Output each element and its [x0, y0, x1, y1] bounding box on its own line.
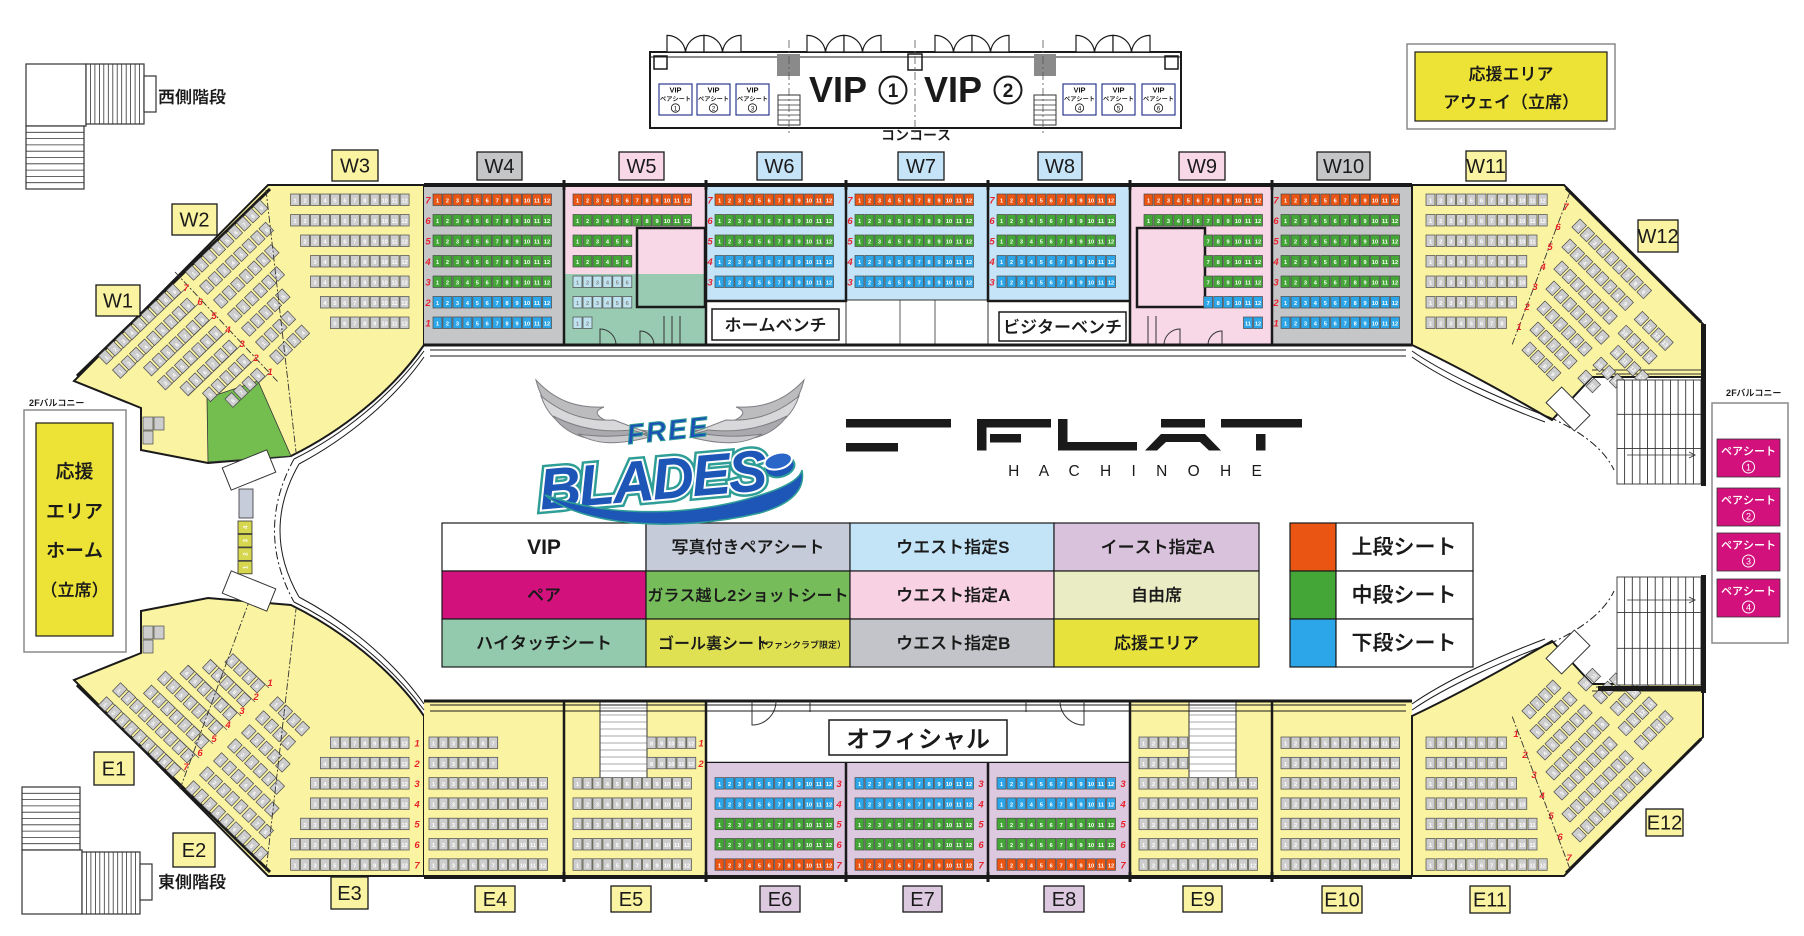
svg-text:12: 12	[688, 762, 694, 768]
svg-text:10: 10	[1230, 782, 1236, 788]
svg-text:12: 12	[1250, 863, 1256, 869]
svg-text:2: 2	[697, 759, 704, 770]
svg-text:1: 1	[718, 782, 721, 788]
svg-text:5: 5	[333, 863, 336, 869]
svg-text:3: 3	[878, 281, 881, 287]
svg-text:12: 12	[401, 762, 407, 768]
svg-text:7: 7	[1060, 260, 1063, 266]
svg-text:2: 2	[446, 301, 449, 307]
svg-text:9: 9	[512, 823, 515, 829]
svg-text:8: 8	[363, 219, 366, 225]
svg-text:11: 11	[534, 281, 540, 287]
svg-text:7: 7	[1490, 219, 1493, 225]
svg-text:1: 1	[1147, 219, 1150, 225]
svg-text:12: 12	[826, 782, 832, 788]
svg-text:9: 9	[656, 782, 659, 788]
svg-text:12: 12	[540, 803, 546, 809]
svg-text:F: F	[1731, 388, 1737, 398]
svg-text:A: A	[1203, 538, 1215, 557]
svg-text:2: 2	[1294, 782, 1297, 788]
svg-text:8: 8	[1070, 823, 1073, 829]
svg-text:6: 6	[486, 301, 489, 307]
svg-text:7: 7	[492, 803, 495, 809]
svg-text:10: 10	[381, 782, 387, 788]
svg-text:6: 6	[626, 281, 629, 287]
svg-text:9: 9	[512, 782, 515, 788]
svg-text:11: 11	[392, 762, 398, 768]
svg-text:2: 2	[868, 260, 871, 266]
svg-text:11: 11	[1098, 281, 1104, 287]
svg-text:8: 8	[1500, 281, 1503, 287]
svg-text:2: 2	[1152, 803, 1155, 809]
svg-text:5: 5	[476, 240, 479, 246]
svg-text:7: 7	[1060, 823, 1063, 829]
svg-text:9: 9	[1511, 260, 1514, 266]
svg-text:3: 3	[707, 278, 713, 289]
svg-text:11: 11	[816, 240, 822, 246]
svg-text:10: 10	[806, 260, 812, 266]
svg-text:12: 12	[1255, 199, 1261, 205]
svg-text:3: 3	[738, 782, 741, 788]
svg-text:7: 7	[1344, 219, 1347, 225]
svg-text:9: 9	[656, 199, 659, 205]
svg-text:6: 6	[482, 803, 485, 809]
svg-text:1: 1	[436, 240, 439, 246]
svg-text:5: 5	[1470, 803, 1473, 809]
svg-text:6: 6	[1480, 803, 1483, 809]
svg-text:10: 10	[946, 240, 952, 246]
svg-text:6: 6	[343, 322, 346, 328]
svg-text:12: 12	[826, 843, 832, 849]
svg-text:8: 8	[788, 260, 791, 266]
svg-text:7: 7	[778, 782, 781, 788]
svg-text:11: 11	[1245, 240, 1251, 246]
svg-text:11: 11	[1530, 843, 1536, 849]
svg-text:12: 12	[401, 301, 407, 307]
svg-text:5: 5	[472, 823, 475, 829]
svg-text:11: 11	[392, 322, 398, 328]
svg-text:9: 9	[512, 843, 515, 849]
svg-text:7: 7	[918, 803, 921, 809]
svg-text:7: 7	[492, 782, 495, 788]
svg-text:E9: E9	[1190, 889, 1214, 911]
svg-text:7: 7	[778, 803, 781, 809]
svg-text:12: 12	[826, 219, 832, 225]
svg-text:1: 1	[1000, 260, 1003, 266]
svg-text:8: 8	[363, 260, 366, 266]
svg-text:5: 5	[616, 823, 619, 829]
svg-text:A: A	[998, 586, 1010, 605]
svg-text:12: 12	[966, 843, 972, 849]
svg-text:1: 1	[294, 843, 297, 849]
svg-text:7: 7	[1207, 281, 1210, 287]
svg-text:3: 3	[1020, 782, 1023, 788]
svg-text:3: 3	[1304, 260, 1307, 266]
svg-text:1: 1	[718, 219, 721, 225]
svg-text:5: 5	[414, 820, 420, 831]
svg-text:1: 1	[576, 219, 579, 225]
svg-text:5: 5	[1120, 820, 1126, 831]
svg-text:5: 5	[333, 240, 336, 246]
svg-text:10: 10	[806, 843, 812, 849]
svg-text:1: 1	[1142, 843, 1145, 849]
svg-text:5: 5	[616, 240, 619, 246]
svg-text:1: 1	[1000, 219, 1003, 225]
svg-text:12: 12	[1108, 823, 1114, 829]
svg-text:6: 6	[197, 748, 203, 759]
svg-text:12: 12	[966, 782, 972, 788]
svg-text:S: S	[998, 538, 1009, 557]
svg-text:8: 8	[363, 199, 366, 205]
svg-text:12: 12	[684, 843, 690, 849]
svg-text:7: 7	[918, 863, 921, 869]
svg-text:1: 1	[1429, 240, 1432, 246]
svg-text:8: 8	[788, 863, 791, 869]
svg-text:12: 12	[401, 843, 407, 849]
svg-text:7: 7	[353, 863, 356, 869]
svg-text:9: 9	[512, 863, 515, 869]
svg-text:12: 12	[1108, 219, 1114, 225]
svg-text:6: 6	[847, 216, 853, 227]
svg-text:5: 5	[1470, 199, 1473, 205]
svg-text:5: 5	[333, 301, 336, 307]
svg-text:6: 6	[768, 260, 771, 266]
svg-text:9: 9	[1364, 199, 1367, 205]
svg-text:3: 3	[313, 281, 316, 287]
svg-text:F: F	[34, 398, 40, 408]
svg-text:11: 11	[956, 843, 962, 849]
svg-text:1: 1	[858, 199, 861, 205]
svg-text:2: 2	[586, 199, 589, 205]
svg-text:6: 6	[626, 301, 629, 307]
svg-text:8: 8	[363, 301, 366, 307]
svg-text:7: 7	[1202, 863, 1205, 869]
svg-text:12: 12	[401, 742, 407, 748]
svg-text:7: 7	[1563, 202, 1569, 213]
svg-text:3: 3	[1449, 762, 1452, 768]
svg-text:2: 2	[728, 803, 731, 809]
svg-text:9: 9	[798, 843, 801, 849]
svg-text:2: 2	[446, 260, 449, 266]
svg-text:3: 3	[596, 863, 599, 869]
svg-text:5: 5	[476, 219, 479, 225]
svg-text:10: 10	[1519, 863, 1525, 869]
svg-text:2: 2	[442, 843, 445, 849]
svg-text:2: 2	[1439, 301, 1442, 307]
svg-text:3: 3	[878, 199, 881, 205]
svg-text:9: 9	[1080, 219, 1083, 225]
svg-text:5: 5	[1040, 240, 1043, 246]
svg-text:10: 10	[524, 322, 530, 328]
svg-text:9: 9	[1511, 782, 1514, 788]
svg-text:7: 7	[183, 283, 189, 294]
svg-text:10: 10	[1519, 240, 1525, 246]
svg-text:E2: E2	[182, 840, 206, 862]
svg-text:5: 5	[1182, 742, 1185, 748]
svg-text:2: 2	[304, 240, 307, 246]
svg-text:5: 5	[616, 281, 619, 287]
svg-text:2: 2	[446, 281, 449, 287]
svg-text:12: 12	[401, 219, 407, 225]
svg-text:11: 11	[534, 301, 540, 307]
svg-text:6: 6	[1334, 762, 1337, 768]
svg-text:1: 1	[1429, 742, 1432, 748]
svg-text:6: 6	[1050, 260, 1053, 266]
svg-text:10: 10	[946, 843, 952, 849]
svg-text:6: 6	[626, 863, 629, 869]
svg-text:12: 12	[1392, 863, 1398, 869]
svg-text:W8: W8	[1045, 156, 1075, 178]
svg-text:5: 5	[758, 823, 761, 829]
svg-text:W7: W7	[906, 156, 936, 178]
svg-text:8: 8	[363, 782, 366, 788]
svg-text:6: 6	[707, 216, 713, 227]
svg-text:2: 2	[1152, 823, 1155, 829]
svg-text:5: 5	[1040, 199, 1043, 205]
svg-text:10: 10	[520, 803, 526, 809]
svg-text:1: 1	[1429, 762, 1432, 768]
svg-text:1: 1	[1429, 301, 1432, 307]
svg-text:7: 7	[636, 199, 639, 205]
svg-text:6: 6	[1480, 762, 1483, 768]
svg-text:9: 9	[938, 823, 941, 829]
svg-text:5: 5	[758, 843, 761, 849]
svg-text:10: 10	[381, 240, 387, 246]
svg-text:2: 2	[413, 759, 420, 770]
svg-text:12: 12	[401, 281, 407, 287]
svg-text:5: 5	[616, 843, 619, 849]
svg-text:8: 8	[363, 762, 366, 768]
svg-text:9: 9	[1080, 782, 1083, 788]
svg-text:5: 5	[1324, 240, 1327, 246]
svg-text:7: 7	[778, 863, 781, 869]
svg-text:5: 5	[333, 843, 336, 849]
svg-text:7: 7	[1344, 742, 1347, 748]
svg-text:3: 3	[456, 301, 459, 307]
svg-text:VIP: VIP	[1073, 86, 1085, 95]
svg-text:10: 10	[806, 863, 812, 869]
svg-text:8: 8	[1500, 260, 1503, 266]
svg-text:7: 7	[918, 782, 921, 788]
svg-text:12: 12	[826, 803, 832, 809]
svg-text:11: 11	[1382, 281, 1388, 287]
svg-text:2: 2	[304, 219, 307, 225]
svg-text:2: 2	[586, 863, 589, 869]
svg-text:10: 10	[664, 843, 670, 849]
svg-text:12: 12	[540, 863, 546, 869]
svg-text:1: 1	[1284, 843, 1287, 849]
svg-text:5: 5	[476, 301, 479, 307]
svg-text:7: 7	[496, 301, 499, 307]
svg-text:6: 6	[768, 823, 771, 829]
svg-text:6: 6	[768, 240, 771, 246]
svg-text:1: 1	[858, 260, 861, 266]
svg-text:1: 1	[1284, 322, 1287, 328]
svg-text:1: 1	[1284, 260, 1287, 266]
svg-text:2: 2	[728, 219, 731, 225]
svg-text:3: 3	[1304, 322, 1307, 328]
svg-text:1: 1	[432, 762, 435, 768]
svg-text:8: 8	[1500, 762, 1503, 768]
svg-text:8: 8	[788, 281, 791, 287]
svg-text:8: 8	[1500, 301, 1503, 307]
svg-text:3: 3	[452, 863, 455, 869]
svg-text:1: 1	[1284, 823, 1287, 829]
svg-text:5: 5	[476, 322, 479, 328]
svg-text:6: 6	[768, 199, 771, 205]
svg-text:10: 10	[1230, 843, 1236, 849]
svg-text:W2: W2	[180, 210, 210, 232]
svg-text:2: 2	[1294, 322, 1297, 328]
svg-text:8: 8	[1354, 863, 1357, 869]
svg-text:5: 5	[1470, 301, 1473, 307]
svg-text:9: 9	[1364, 219, 1367, 225]
svg-text:1: 1	[718, 240, 721, 246]
svg-text:2: 2	[1439, 762, 1442, 768]
svg-text:7: 7	[918, 843, 921, 849]
svg-text:3: 3	[313, 823, 316, 829]
svg-text:9: 9	[938, 863, 941, 869]
svg-text:6: 6	[1050, 803, 1053, 809]
svg-text:5: 5	[616, 863, 619, 869]
svg-text:2: 2	[728, 782, 731, 788]
svg-text:10: 10	[1372, 199, 1378, 205]
svg-text:2: 2	[1439, 782, 1442, 788]
svg-text:8: 8	[1354, 843, 1357, 849]
svg-text:5: 5	[1324, 863, 1327, 869]
svg-text:7: 7	[353, 762, 356, 768]
svg-text:12: 12	[1392, 843, 1398, 849]
svg-text:6: 6	[1157, 106, 1161, 113]
svg-text:7: 7	[1490, 843, 1493, 849]
svg-text:10: 10	[806, 281, 812, 287]
svg-text:1: 1	[576, 301, 579, 307]
svg-text:10: 10	[1230, 863, 1236, 869]
svg-text:7: 7	[1490, 782, 1493, 788]
svg-text:12: 12	[1255, 322, 1261, 328]
svg-text:9: 9	[1080, 863, 1083, 869]
svg-text:12: 12	[401, 199, 407, 205]
svg-text:9: 9	[1364, 843, 1367, 849]
svg-text:5: 5	[1324, 823, 1327, 829]
svg-text:6: 6	[482, 863, 485, 869]
svg-text:6: 6	[768, 863, 771, 869]
svg-text:VIP: VIP	[669, 86, 681, 95]
svg-text:7: 7	[1344, 199, 1347, 205]
svg-text:5: 5	[333, 199, 336, 205]
svg-text:6: 6	[1334, 843, 1337, 849]
svg-text:5: 5	[333, 823, 336, 829]
svg-text:7: 7	[636, 803, 639, 809]
svg-text:3: 3	[878, 863, 881, 869]
svg-text:9: 9	[1364, 281, 1367, 287]
svg-text:11: 11	[956, 260, 962, 266]
svg-text:6: 6	[1480, 843, 1483, 849]
svg-text:4: 4	[224, 325, 231, 336]
svg-text:12: 12	[1392, 281, 1398, 287]
svg-text:2: 2	[1294, 301, 1297, 307]
svg-text:8: 8	[502, 782, 505, 788]
svg-text:6: 6	[1192, 843, 1195, 849]
svg-text:11: 11	[534, 260, 540, 266]
svg-text:6: 6	[486, 240, 489, 246]
svg-text:2: 2	[1439, 742, 1442, 748]
svg-text:9: 9	[1511, 843, 1514, 849]
svg-text:11: 11	[1382, 843, 1388, 849]
svg-text:12: 12	[1392, 782, 1398, 788]
svg-text:2: 2	[1010, 782, 1013, 788]
svg-text:5: 5	[1324, 762, 1327, 768]
svg-text:1: 1	[1429, 260, 1432, 266]
svg-text:E4: E4	[483, 889, 507, 911]
svg-text:2: 2	[304, 863, 307, 869]
svg-text:8: 8	[1500, 199, 1503, 205]
svg-text:3: 3	[1167, 219, 1170, 225]
svg-text:8: 8	[646, 219, 649, 225]
svg-text:5: 5	[1182, 803, 1185, 809]
svg-text:8: 8	[1212, 843, 1215, 849]
svg-text:2: 2	[868, 863, 871, 869]
svg-text:9: 9	[373, 260, 376, 266]
svg-text:8: 8	[788, 199, 791, 205]
svg-text:8: 8	[928, 219, 931, 225]
svg-text:1: 1	[436, 199, 439, 205]
svg-text:10: 10	[1088, 863, 1094, 869]
svg-text:2: 2	[1294, 199, 1297, 205]
svg-text:10: 10	[664, 219, 670, 225]
svg-text:12: 12	[1108, 863, 1114, 869]
svg-text:8: 8	[363, 322, 366, 328]
svg-text:11: 11	[1530, 823, 1536, 829]
svg-text:6: 6	[908, 803, 911, 809]
svg-text:1: 1	[858, 281, 861, 287]
svg-text:W12: W12	[1637, 226, 1678, 248]
svg-text:E11: E11	[1473, 890, 1507, 912]
svg-text:3: 3	[978, 779, 984, 790]
svg-text:6: 6	[1120, 840, 1126, 851]
svg-text:10: 10	[520, 863, 526, 869]
svg-text:6: 6	[908, 199, 911, 205]
svg-text:8: 8	[1070, 240, 1073, 246]
svg-text:9: 9	[373, 240, 376, 246]
svg-text:7: 7	[353, 322, 356, 328]
svg-text:7: 7	[1490, 823, 1493, 829]
svg-text:3: 3	[1449, 843, 1452, 849]
svg-text:8: 8	[928, 843, 931, 849]
svg-text:7: 7	[778, 219, 781, 225]
svg-text:9: 9	[1364, 742, 1367, 748]
svg-text:11: 11	[956, 782, 962, 788]
svg-text:9: 9	[938, 782, 941, 788]
svg-text:8: 8	[788, 240, 791, 246]
svg-text:7: 7	[1344, 762, 1347, 768]
svg-text:5: 5	[1324, 301, 1327, 307]
svg-text:3: 3	[751, 106, 755, 113]
svg-text:5: 5	[1324, 260, 1327, 266]
svg-text:6: 6	[343, 240, 346, 246]
svg-text:1: 1	[858, 823, 861, 829]
svg-text:3: 3	[1449, 742, 1452, 748]
svg-text:3: 3	[1020, 863, 1023, 869]
svg-text:3: 3	[456, 281, 459, 287]
svg-text:1: 1	[718, 843, 721, 849]
svg-text:2: 2	[1152, 742, 1155, 748]
svg-text:10: 10	[1088, 199, 1094, 205]
svg-text:9: 9	[798, 281, 801, 287]
svg-text:10: 10	[382, 863, 388, 869]
svg-text:1: 1	[576, 199, 579, 205]
svg-text:3: 3	[1162, 782, 1165, 788]
